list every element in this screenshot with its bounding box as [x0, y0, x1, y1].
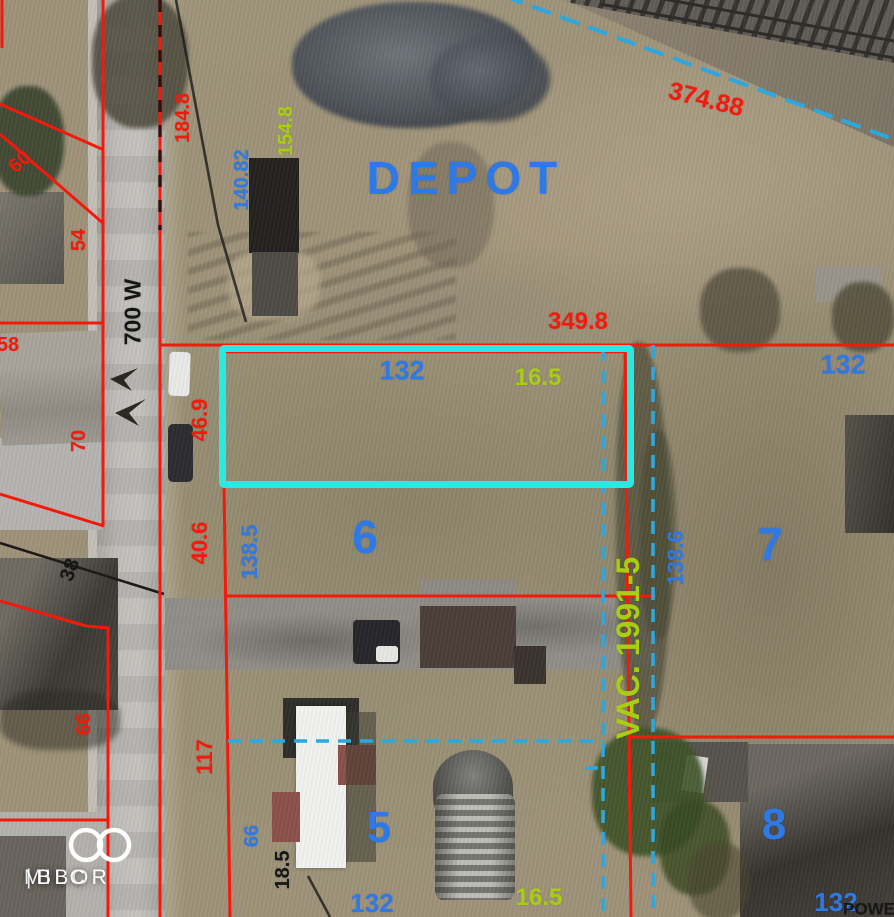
dim-66-west: 66 [74, 713, 94, 735]
dim-138-5: 138.5 [239, 524, 261, 579]
dim-40-6: 40.6 [189, 522, 211, 565]
dim-54: 54 [69, 229, 89, 251]
dim-117: 117 [194, 739, 216, 775]
dim-349-8: 349.8 [548, 310, 608, 334]
dim-46-9: 46.9 [189, 399, 211, 442]
infinity-logo-icon [64, 820, 136, 870]
powerline-label: POWE [843, 901, 894, 917]
map-annotations: 184.8154.8140.82DEPOT374.88349.813216.51… [0, 0, 894, 917]
watermark-text: MIBOR|BLC [24, 866, 174, 890]
mibor-blc-watermark: MIBOR|BLC [24, 816, 164, 902]
dim-60: 60 [5, 147, 35, 177]
dim-16-5-south: 16.5 [516, 886, 563, 910]
vacation-label: VAC. 1991-5 [612, 557, 644, 740]
dim-132-east: 132 [820, 352, 865, 379]
dim-70: 70 [69, 430, 89, 452]
dim-374-88: 374.88 [666, 79, 746, 122]
dim-138-6: 138.6 [665, 530, 687, 585]
dim-66-south: 66 [242, 825, 262, 847]
dim-154-8: 154.8 [276, 106, 296, 156]
dim-184-8: 184.8 [173, 93, 193, 143]
dim-132-south: 132 [350, 890, 393, 916]
brand-divider: | [24, 866, 37, 890]
dim-58: 58 [0, 335, 19, 355]
lot-5: 5 [367, 806, 391, 850]
lot-6: 6 [352, 514, 378, 560]
lot-8: 8 [762, 803, 786, 847]
brand-blc: BLC [37, 866, 88, 890]
dim-18-5: 18.5 [273, 851, 293, 890]
lot-7: 7 [757, 521, 783, 567]
street-700-w: 700 W [122, 279, 145, 345]
dim-38: 38 [57, 556, 83, 584]
dim-140-82: 140.82 [232, 149, 252, 210]
dim-132-subject: 132 [379, 358, 424, 385]
aerial-parcel-map: 184.8154.8140.82DEPOT374.88349.813216.51… [0, 0, 894, 917]
depot-label: DEPOT [367, 155, 565, 201]
dim-16-5-subject: 16.5 [515, 366, 562, 390]
